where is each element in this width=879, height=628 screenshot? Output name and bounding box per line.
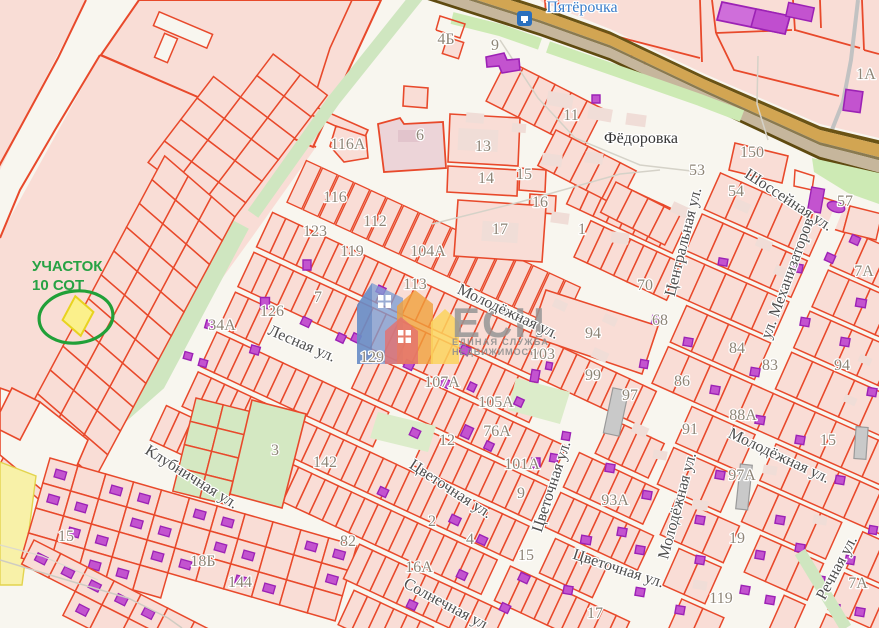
svg-text:101А: 101А <box>504 456 540 473</box>
svg-text:104А: 104А <box>410 243 446 260</box>
svg-text:6: 6 <box>416 127 424 144</box>
svg-text:116: 116 <box>323 189 346 206</box>
svg-text:14: 14 <box>478 170 494 187</box>
svg-text:94: 94 <box>834 357 850 374</box>
svg-text:93А: 93А <box>601 492 629 509</box>
svg-text:34А: 34А <box>208 317 236 334</box>
svg-text:142: 142 <box>313 454 337 471</box>
svg-text:19: 19 <box>729 530 745 547</box>
svg-text:91: 91 <box>682 421 698 438</box>
svg-text:113: 113 <box>403 276 426 293</box>
svg-text:129: 129 <box>360 349 384 366</box>
svg-text:84: 84 <box>729 340 745 357</box>
svg-text:3: 3 <box>271 442 279 459</box>
svg-text:76А: 76А <box>483 423 511 440</box>
svg-text:17: 17 <box>492 221 508 238</box>
svg-text:116А: 116А <box>331 136 366 153</box>
svg-text:82: 82 <box>340 533 356 550</box>
svg-text:4Б: 4Б <box>437 31 454 48</box>
svg-text:105А: 105А <box>478 394 514 411</box>
svg-text:17: 17 <box>587 605 603 622</box>
svg-text:15: 15 <box>58 528 74 545</box>
svg-text:15: 15 <box>518 547 534 564</box>
svg-text:70: 70 <box>637 277 653 294</box>
svg-text:119: 119 <box>340 243 363 260</box>
svg-text:144: 144 <box>228 574 252 591</box>
svg-text:Фёдоровка: Фёдоровка <box>604 130 678 147</box>
svg-text:99: 99 <box>585 367 601 384</box>
svg-text:68: 68 <box>652 312 668 329</box>
svg-text:53: 53 <box>689 162 705 179</box>
svg-text:11: 11 <box>563 107 578 124</box>
svg-text:4: 4 <box>466 531 474 548</box>
svg-text:1: 1 <box>578 221 586 238</box>
svg-text:97А: 97А <box>728 467 756 484</box>
svg-text:15: 15 <box>820 432 836 449</box>
svg-text:97: 97 <box>622 387 638 404</box>
svg-text:119: 119 <box>709 590 732 607</box>
svg-text:88А: 88А <box>729 407 757 424</box>
svg-text:9: 9 <box>517 485 525 502</box>
svg-text:86: 86 <box>674 373 690 390</box>
svg-text:83: 83 <box>762 357 778 374</box>
svg-text:107А: 107А <box>424 374 460 391</box>
svg-text:54: 54 <box>728 183 744 200</box>
svg-text:123: 123 <box>303 223 327 240</box>
svg-text:2: 2 <box>428 513 436 530</box>
svg-text:112: 112 <box>363 213 386 230</box>
svg-text:16А: 16А <box>405 559 433 576</box>
svg-text:57: 57 <box>837 193 853 210</box>
svg-text:УЧАСТОК: УЧАСТОК <box>32 258 103 275</box>
svg-text:126: 126 <box>260 303 284 320</box>
svg-text:Пятёрочка: Пятёрочка <box>546 0 617 16</box>
svg-text:150: 150 <box>740 144 764 161</box>
svg-text:16: 16 <box>532 194 548 211</box>
svg-text:94: 94 <box>585 325 601 342</box>
svg-text:7А: 7А <box>854 263 874 280</box>
svg-text:12: 12 <box>439 432 455 449</box>
svg-text:18Б: 18Б <box>190 553 215 570</box>
svg-text:7: 7 <box>314 289 322 306</box>
svg-text:15: 15 <box>516 166 532 183</box>
svg-text:1А: 1А <box>856 66 876 83</box>
svg-text:9: 9 <box>491 37 499 54</box>
svg-text:7А: 7А <box>848 575 868 592</box>
svg-text:13: 13 <box>475 138 491 155</box>
svg-text:103: 103 <box>531 346 555 363</box>
svg-text:НЕДВИЖИМОСТИ: НЕДВИЖИМОСТИ <box>452 347 542 357</box>
